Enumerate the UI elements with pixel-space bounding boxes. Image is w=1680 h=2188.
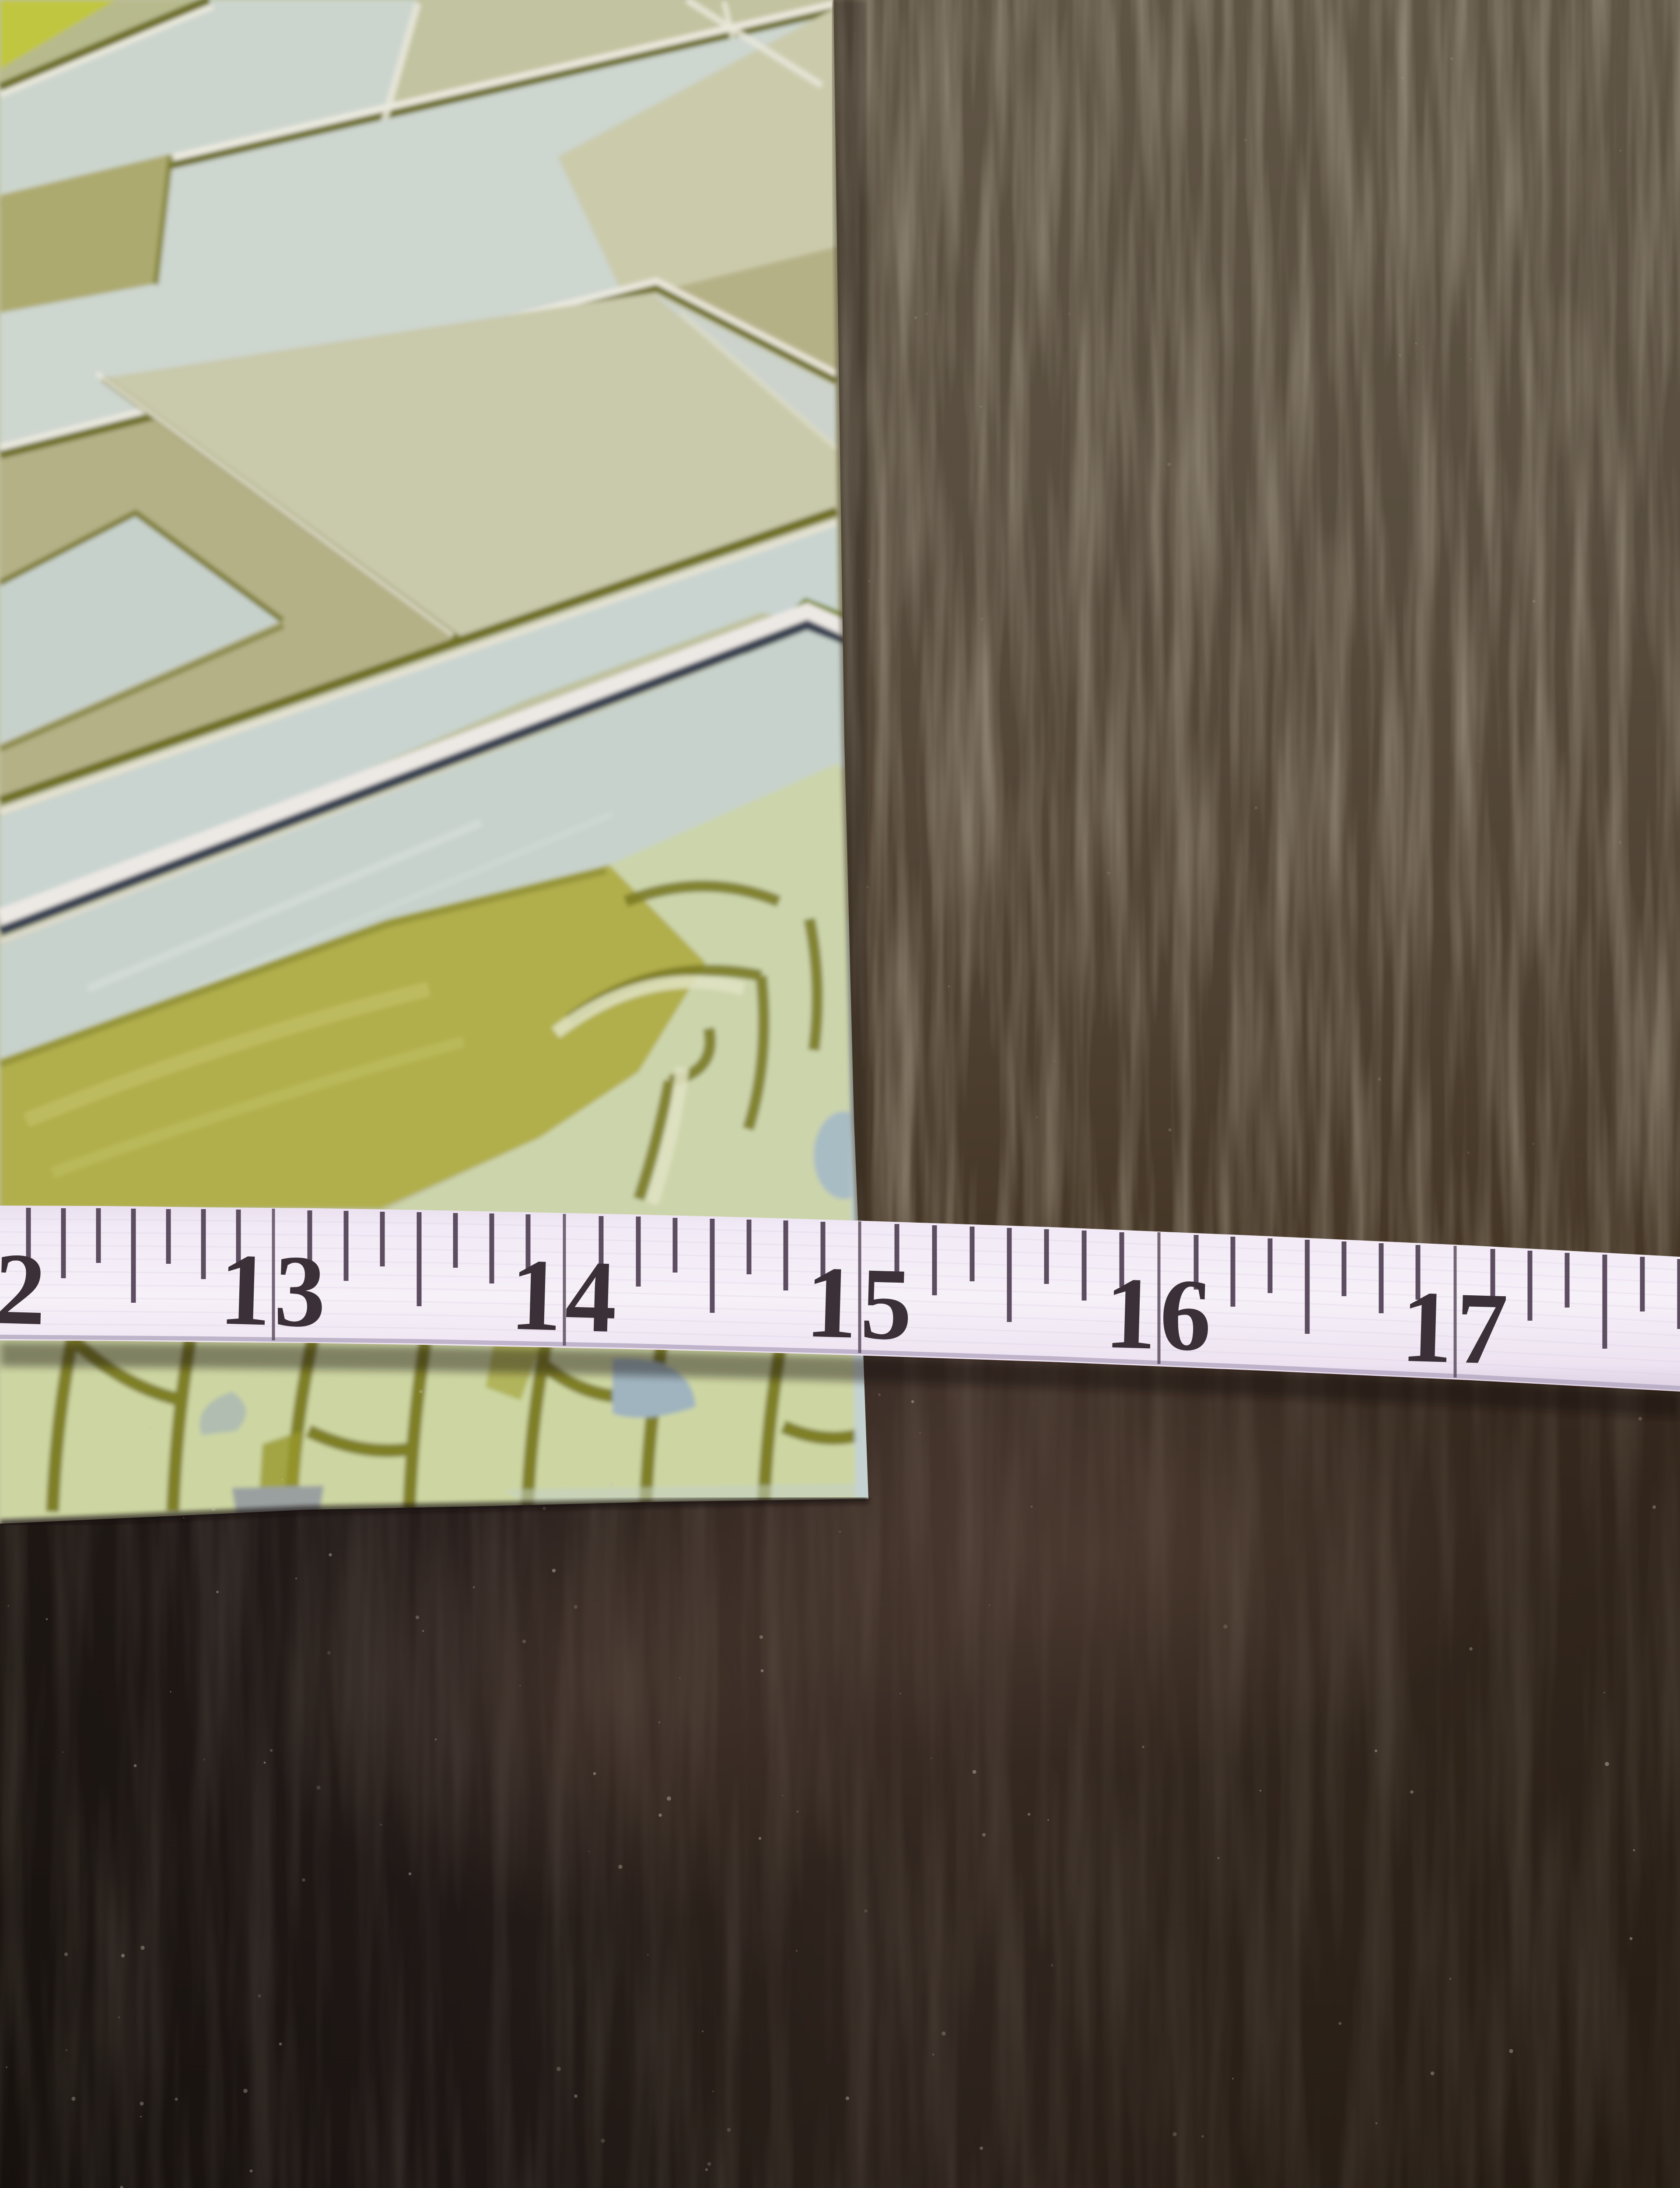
svg-text:17: 17 xyxy=(1400,1269,1512,1386)
svg-text:13: 13 xyxy=(218,1232,331,1349)
svg-text:16: 16 xyxy=(1103,1256,1216,1373)
svg-text:14: 14 xyxy=(509,1238,622,1354)
svg-text:15: 15 xyxy=(804,1245,917,1362)
svg-text:12: 12 xyxy=(0,1230,51,1347)
